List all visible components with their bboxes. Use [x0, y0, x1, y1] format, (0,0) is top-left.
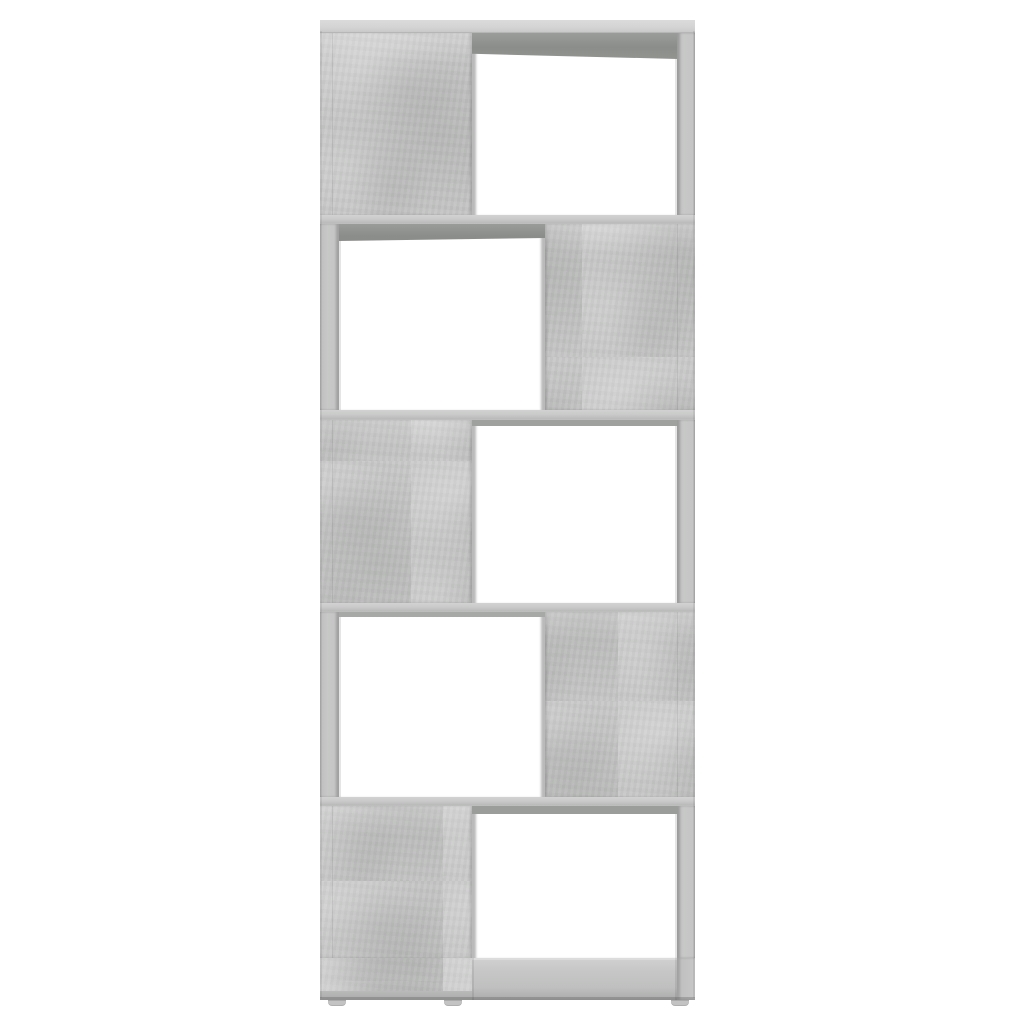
open-compartment — [472, 806, 677, 958]
concrete-panel — [320, 33, 472, 215]
shelf-divider — [320, 215, 695, 224]
bookcase-foot-left — [328, 1000, 346, 1006]
bookcase-tier-5 — [320, 806, 695, 958]
bookcase — [320, 20, 695, 1006]
open-compartment — [339, 224, 545, 410]
bookcase-tiers — [320, 33, 695, 958]
shelf-underside-shadow — [472, 806, 677, 814]
bookcase-foot-center — [444, 1000, 462, 1006]
concrete-panel — [320, 420, 472, 603]
product-photo-canvas — [0, 0, 1024, 1024]
bookcase-tier-4 — [320, 612, 695, 797]
shelf-divider — [320, 603, 695, 612]
side-frame — [677, 806, 695, 958]
shelf-underside-shadow — [339, 224, 545, 241]
shelf-divider — [320, 797, 695, 806]
bottom-shelf — [472, 958, 677, 1000]
open-compartment — [472, 33, 677, 215]
concrete-panel — [320, 806, 472, 958]
concrete-panel — [545, 612, 695, 797]
bookcase-top-panel — [320, 20, 695, 33]
concrete-panel — [545, 224, 695, 410]
side-frame — [320, 224, 339, 410]
side-frame — [320, 612, 339, 797]
side-frame — [677, 420, 695, 603]
bookcase-bottom — [320, 958, 695, 1000]
side-frame — [677, 33, 695, 215]
shelf-underside-shadow — [339, 612, 545, 617]
bookcase-tier-2 — [320, 224, 695, 410]
bookcase-tier-3 — [320, 420, 695, 603]
side-frame-bottom — [677, 958, 695, 1000]
open-compartment — [472, 420, 677, 603]
shelf-underside-shadow — [472, 420, 677, 426]
shelf-divider — [320, 410, 695, 420]
bookcase-foot-right — [671, 1000, 689, 1006]
concrete-panel-bottom — [320, 958, 472, 1000]
open-compartment — [339, 612, 545, 797]
shelf-underside-shadow — [472, 33, 677, 59]
bookcase-tier-1 — [320, 33, 695, 215]
